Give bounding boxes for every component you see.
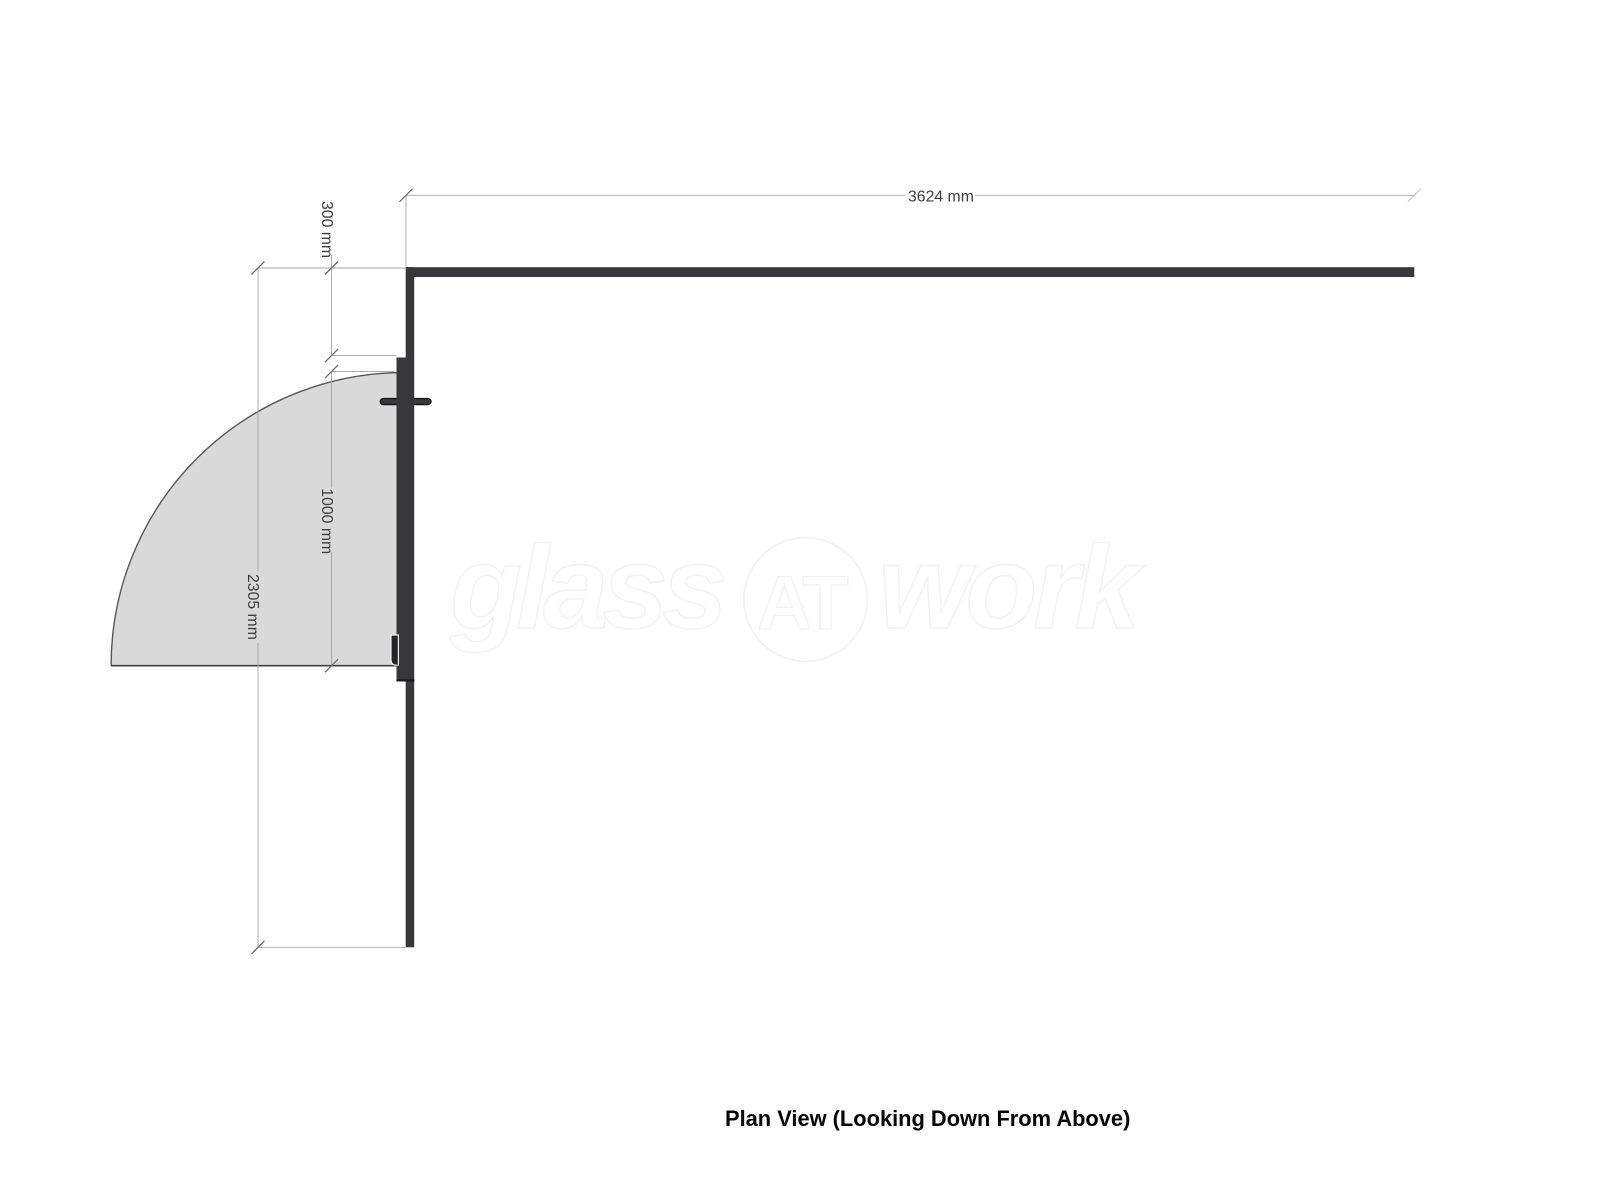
svg-text:1000 mm: 1000 mm: [318, 488, 335, 554]
svg-text:glass: glass: [449, 522, 724, 654]
svg-text:AT: AT: [757, 561, 848, 646]
svg-text:3624 mm: 3624 mm: [908, 188, 974, 205]
svg-text:work: work: [878, 522, 1146, 654]
svg-text:2305 mm: 2305 mm: [244, 574, 261, 640]
svg-text:300 mm: 300 mm: [318, 201, 335, 258]
svg-text:Plan View (Looking Down From A: Plan View (Looking Down From Above): [725, 1106, 1130, 1131]
